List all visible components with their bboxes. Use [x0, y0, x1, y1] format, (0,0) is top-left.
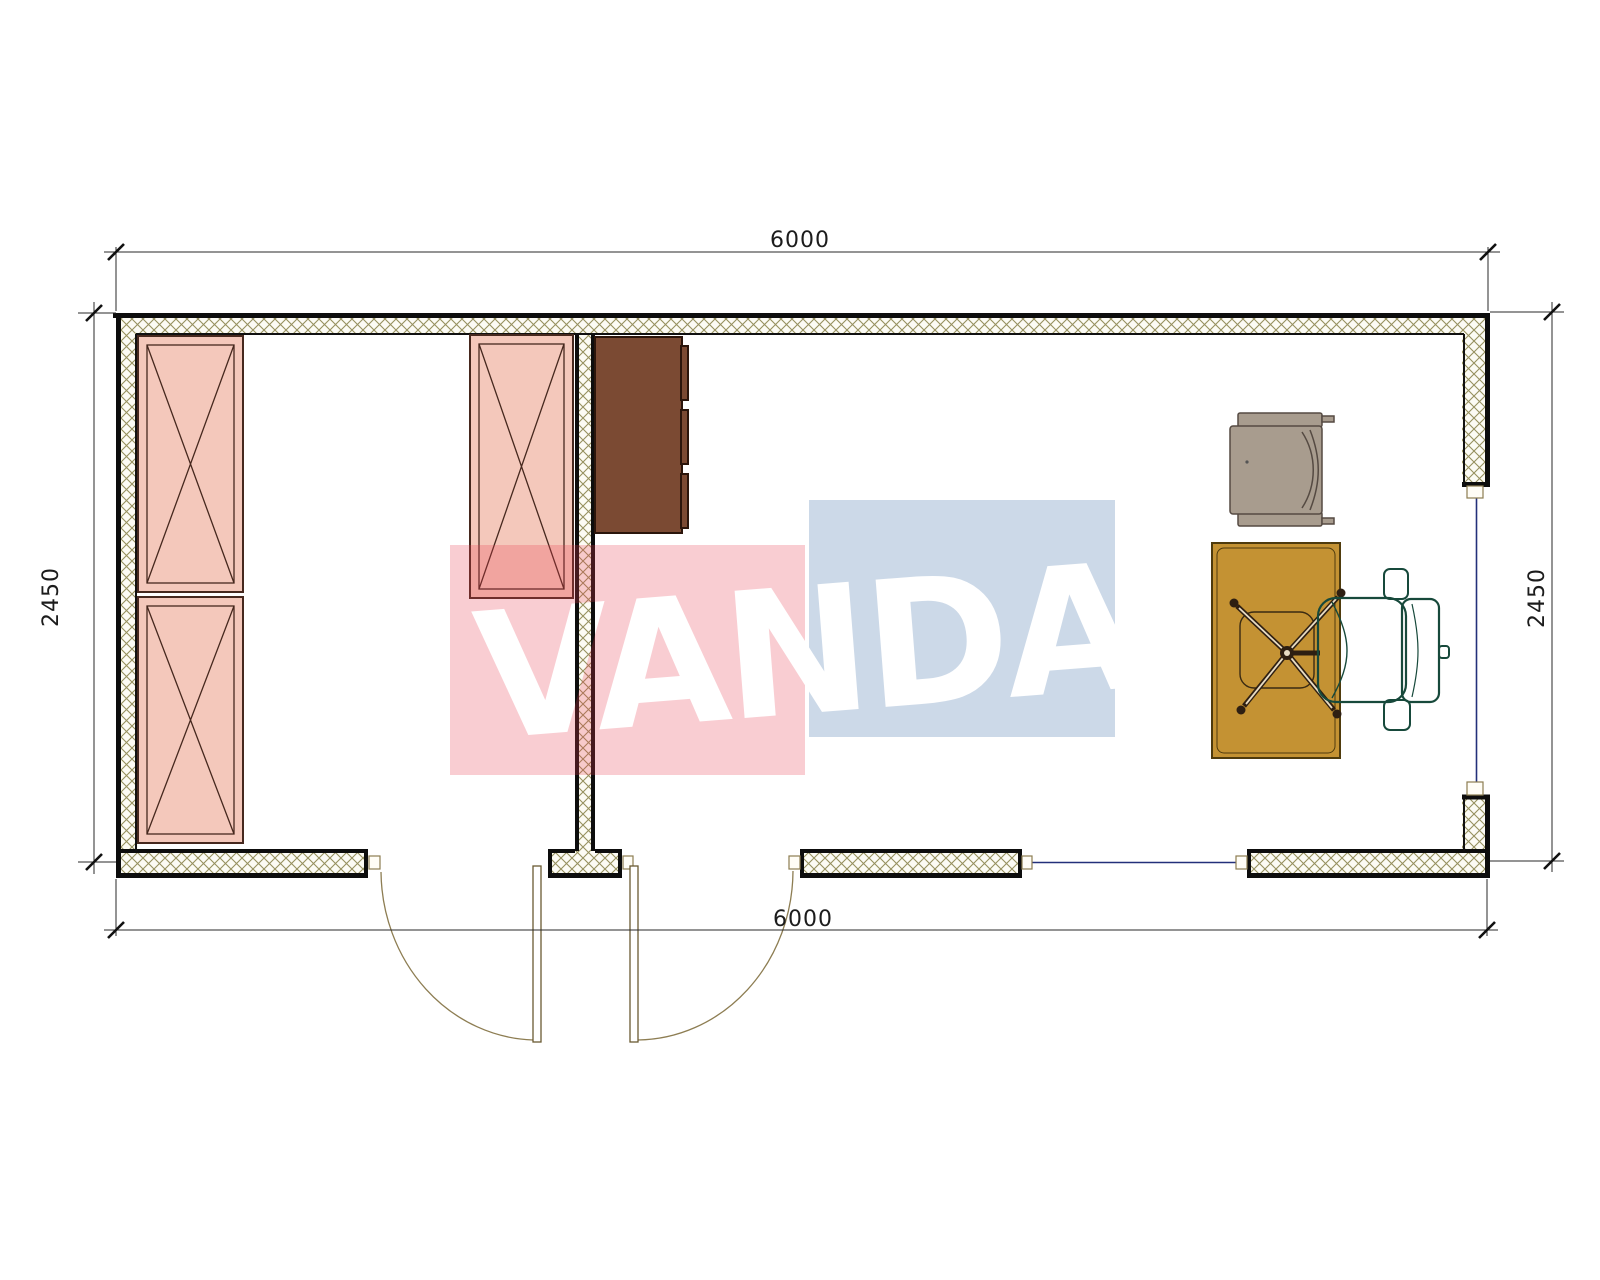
- caster-wheel: [1333, 710, 1342, 719]
- window-jamb: [1236, 856, 1247, 869]
- drawer-handle: [681, 410, 688, 464]
- window-jamb: [1467, 486, 1483, 498]
- cabinet-brown-sideboard: [595, 337, 688, 533]
- watermark-blue-block: [809, 500, 1115, 737]
- top-dimension-label: 6000: [770, 228, 830, 253]
- window-jamb: [1467, 782, 1483, 795]
- chair-backrest: [1402, 599, 1439, 702]
- door-1-leaf: [533, 866, 541, 1042]
- caster-wheel: [1237, 706, 1246, 715]
- armchair: [1230, 413, 1334, 526]
- window-jamb: [789, 856, 800, 869]
- doors: [369, 856, 793, 1042]
- chair-armrest: [1384, 569, 1408, 599]
- watermark-pink-block: [450, 545, 805, 775]
- window-jamb: [1022, 856, 1032, 869]
- door-2-leaf: [630, 866, 638, 1042]
- chair-back-knob: [1439, 646, 1449, 658]
- chair-armrest: [1384, 700, 1410, 730]
- cabinet-left-lower: [138, 597, 243, 843]
- caster-wheel: [1230, 599, 1239, 608]
- right-dimension-label: 2450: [1525, 568, 1550, 628]
- left-dimension-label: 2450: [39, 567, 64, 627]
- door-jamb: [369, 856, 380, 869]
- door-2-swing-arc: [638, 871, 793, 1040]
- floor-plan-canvas: VANDA: [0, 0, 1600, 1280]
- bottom-dimension-label: 6000: [773, 907, 833, 932]
- drawer-handle: [681, 474, 688, 528]
- door-1-swing-arc: [381, 872, 533, 1040]
- cabinet-left-upper: [138, 336, 243, 592]
- floor-plan-drawing: VANDA: [0, 0, 1600, 1280]
- drawer-handle: [681, 346, 688, 400]
- office-desk: [1212, 543, 1340, 758]
- caster-wheel: [1337, 589, 1346, 598]
